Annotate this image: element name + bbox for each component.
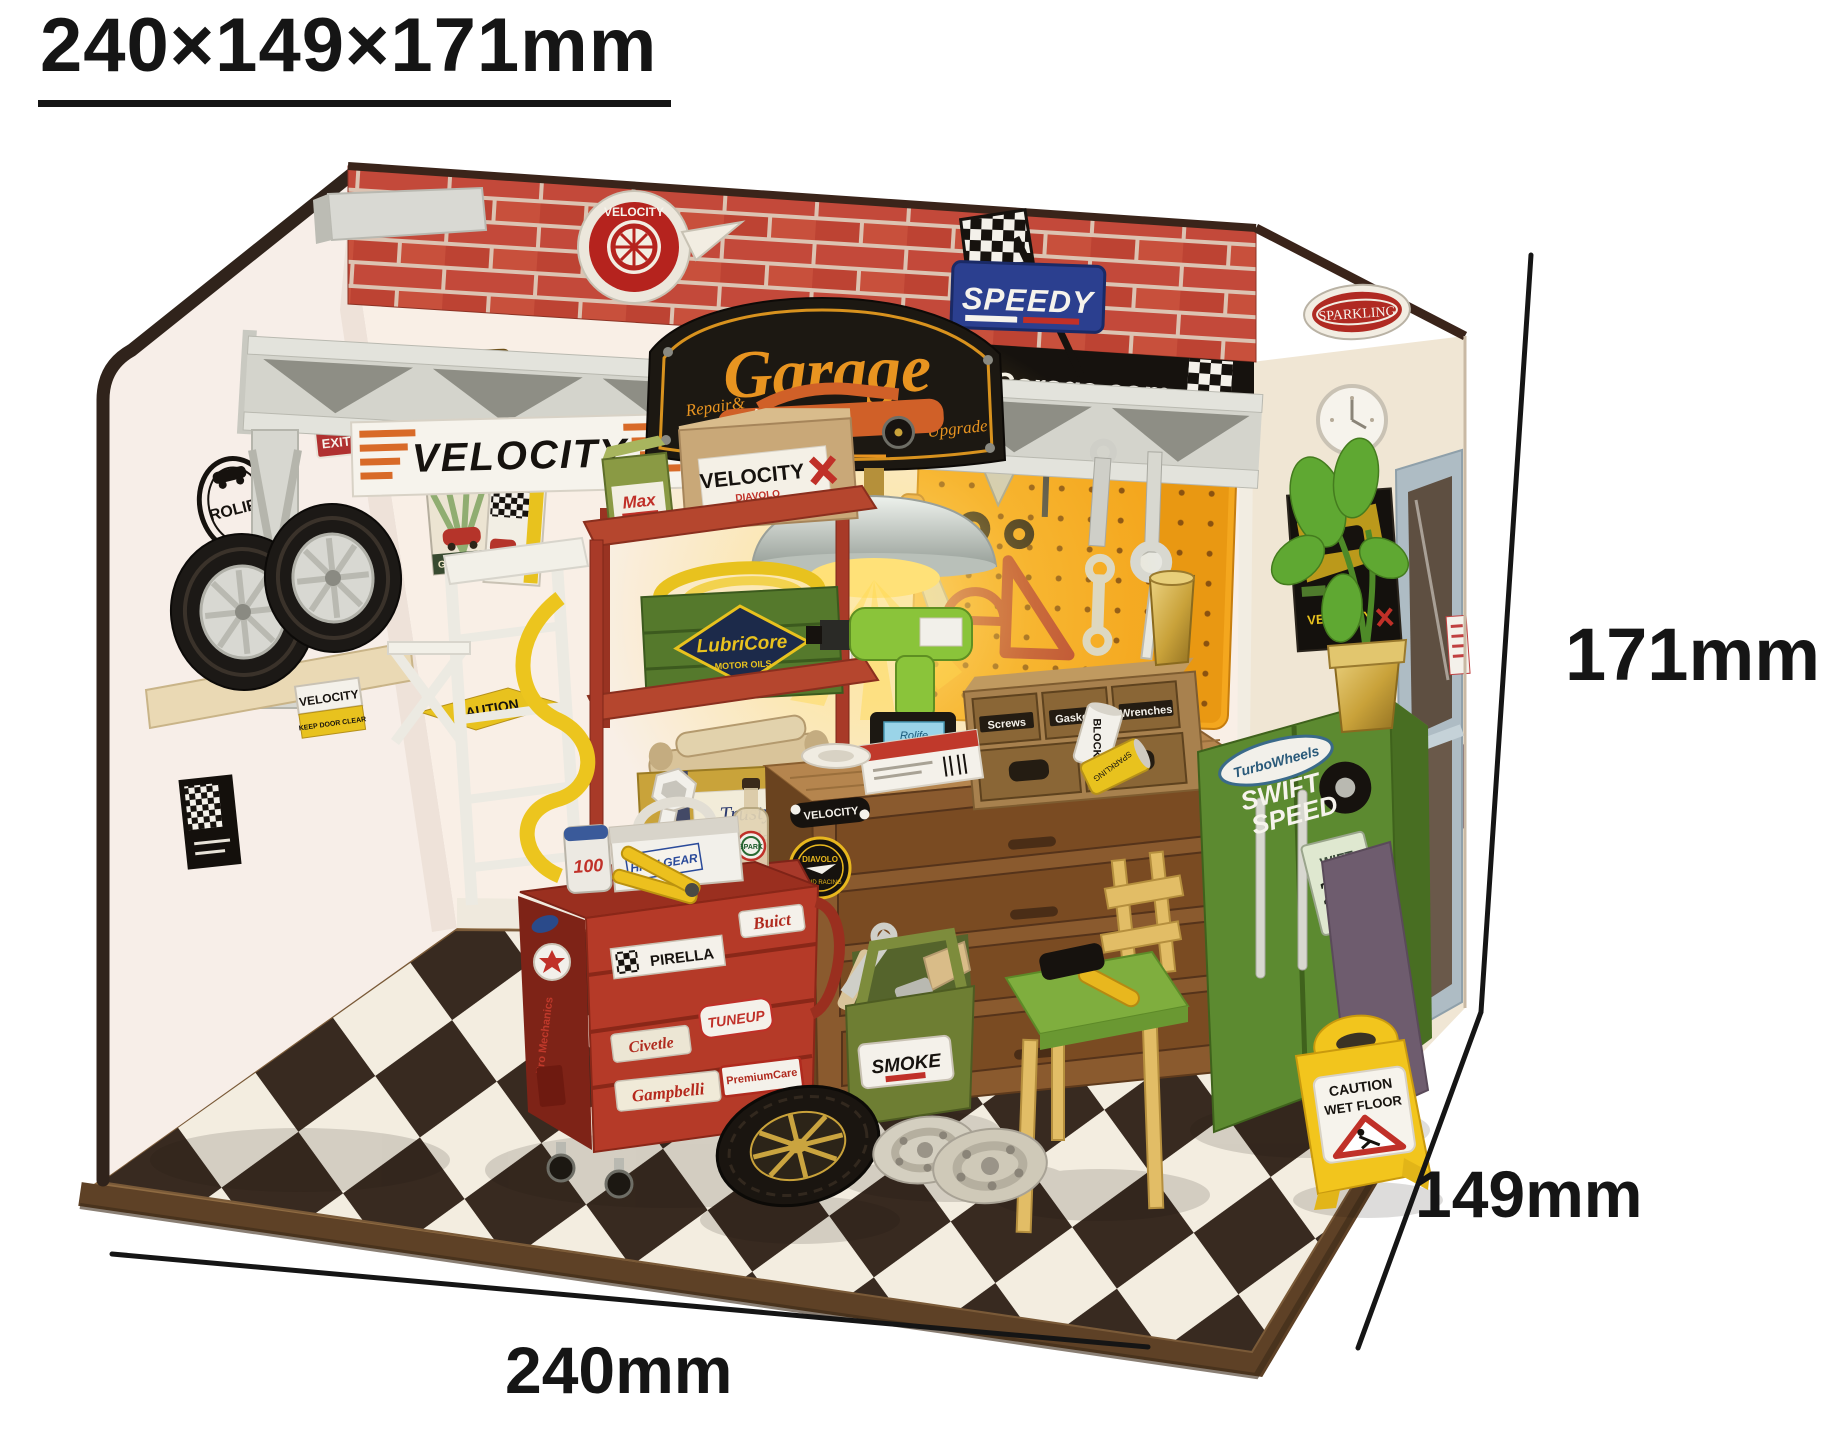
garage-sign-title: Garage — [722, 329, 932, 412]
sparkling-sign: SPARKLING — [1302, 281, 1412, 342]
wheel-icon — [613, 226, 655, 268]
width-dimension-label: 240mm — [505, 1332, 733, 1408]
wall-checker-sticker — [178, 774, 241, 869]
miniature-garage-photo: Garage.com SPEEDY VELOCITY SP — [0, 0, 1827, 1452]
spark-bottle-text: SPARK — [739, 844, 763, 851]
gold-cup — [1150, 571, 1194, 665]
speedy-text: SPEEDY — [961, 281, 1096, 321]
product-screenshot: 240×149×171mm — [0, 0, 1827, 1452]
depth-dimension-label: 149mm — [1415, 1156, 1643, 1232]
oil-can-text: 100 — [573, 855, 604, 877]
velocity-badge-text: VELOCITY — [604, 205, 664, 219]
smoke-toolbox: SMOKE — [836, 926, 974, 1126]
block-can-text: BLOCK — [1090, 718, 1102, 757]
diavolo-badge-top: DIAVOLO — [802, 855, 838, 864]
tape-roll — [802, 744, 870, 768]
max-box-text: Max — [622, 490, 658, 513]
height-dimension-label: 171mm — [1565, 612, 1820, 697]
height-dimension-line — [1481, 255, 1531, 1012]
oil-can-100: 100 — [564, 825, 612, 894]
keep-door-sign: VELOCITY KEEP DOOR CLEAR — [293, 678, 368, 739]
velocity-banner-text: VELOCITY — [411, 431, 629, 481]
